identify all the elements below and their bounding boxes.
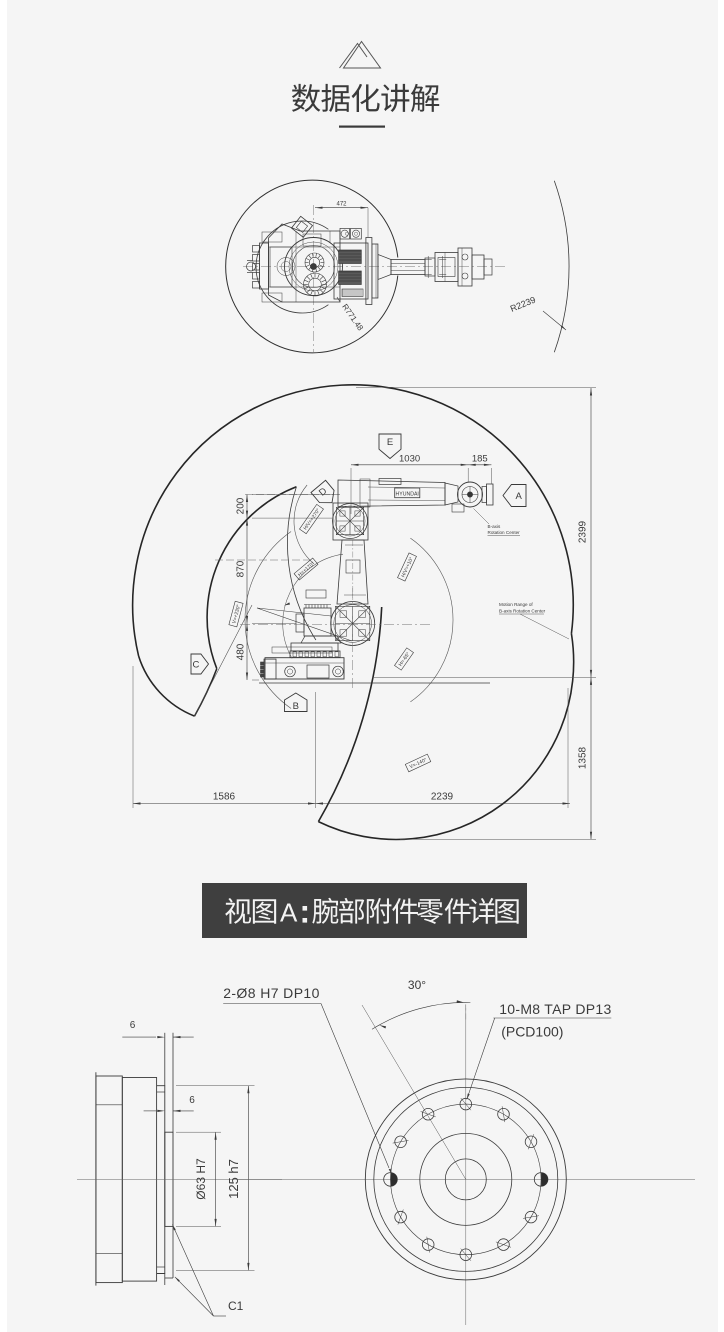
svg-text:E: E [387, 437, 393, 448]
svg-text:10-M8 TAP DP13: 10-M8 TAP DP13 [499, 1001, 611, 1017]
svg-text:30°: 30° [408, 978, 426, 992]
svg-text:472: 472 [336, 201, 347, 207]
svg-text:B: B [293, 701, 299, 712]
svg-text:480: 480 [236, 643, 247, 660]
svg-text:6: 6 [130, 1020, 136, 1031]
svg-text:2-Ø8 H7 DP10: 2-Ø8 H7 DP10 [223, 985, 320, 1001]
svg-text:125 h7: 125 h7 [226, 1159, 241, 1199]
svg-text:(PCD100): (PCD100) [501, 1024, 563, 1040]
svg-text:200: 200 [236, 497, 247, 514]
svg-text:6: 6 [189, 1095, 195, 1106]
svg-text:Ø63 H7: Ø63 H7 [194, 1158, 208, 1200]
svg-text:A: A [280, 898, 298, 928]
svg-text:Motion Range of: Motion Range of [499, 602, 533, 607]
svg-text:B-axis: B-axis [488, 524, 501, 529]
svg-text:1030: 1030 [399, 453, 420, 464]
svg-text:2399: 2399 [578, 520, 589, 543]
svg-text:185: 185 [472, 453, 488, 464]
svg-text:C: C [192, 659, 199, 670]
svg-text:2239: 2239 [431, 792, 454, 803]
svg-text:1358: 1358 [578, 746, 589, 769]
svg-text:Rotation Center: Rotation Center [488, 530, 521, 535]
svg-text:C1: C1 [228, 1299, 244, 1313]
svg-text:870: 870 [236, 560, 247, 577]
svg-text:B-axis Rotation Center: B-axis Rotation Center [499, 609, 546, 614]
svg-text:1586: 1586 [213, 792, 236, 803]
svg-text:HYUNDAI: HYUNDAI [396, 491, 419, 497]
svg-text:A: A [516, 491, 523, 502]
